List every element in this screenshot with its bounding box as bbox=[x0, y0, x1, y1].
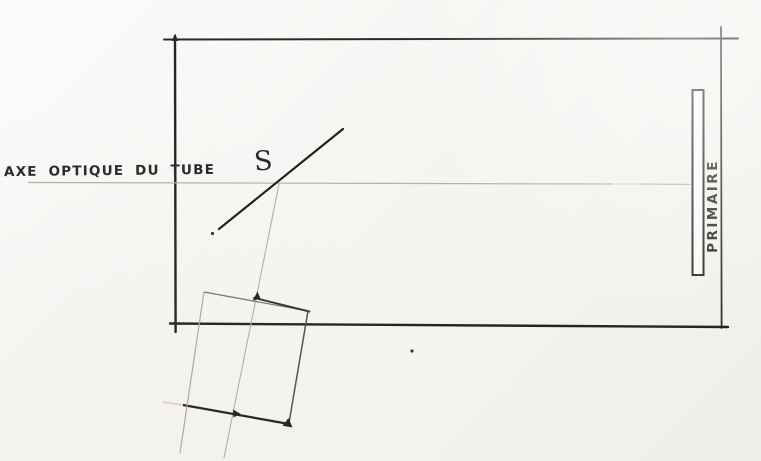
focuser-bottom-pale-extension bbox=[163, 402, 183, 405]
primary-mirror-rect bbox=[693, 90, 704, 275]
stray-ink-dot bbox=[410, 349, 413, 352]
optical-axis-line bbox=[28, 183, 612, 185]
telescope-tube-outline bbox=[164, 27, 738, 332]
tube-right-edge bbox=[721, 27, 722, 328]
optical-axis-label: AXE OPTIQUE DU TUBE bbox=[4, 162, 215, 180]
scanned-drawing: AXE OPTIQUE DU TUBE S PRIMAIRE bbox=[0, 0, 761, 461]
focuser-square bbox=[163, 292, 310, 454]
tube-top-edge bbox=[164, 39, 738, 40]
secondary-mirror-label: S bbox=[253, 145, 274, 177]
primary-mirror-label: PRIMAIRE bbox=[705, 159, 721, 253]
secondary-end-dot bbox=[211, 232, 214, 235]
tube-bottom-edge bbox=[170, 324, 728, 328]
secondary-mirror-line bbox=[219, 129, 343, 229]
axis-arrow-bottom-edge bbox=[233, 410, 241, 418]
optical-axis-line-segment bbox=[638, 184, 691, 185]
tube-topleft-tick bbox=[172, 34, 178, 42]
focuser-right-edge bbox=[289, 311, 308, 423]
schematic-canvas bbox=[0, 0, 761, 461]
focuser-top-edge-inked bbox=[254, 298, 310, 312]
secondary-mirror bbox=[211, 129, 343, 235]
focuser-left-edge-extended bbox=[180, 292, 204, 453]
tube-left-edge bbox=[175, 36, 176, 332]
